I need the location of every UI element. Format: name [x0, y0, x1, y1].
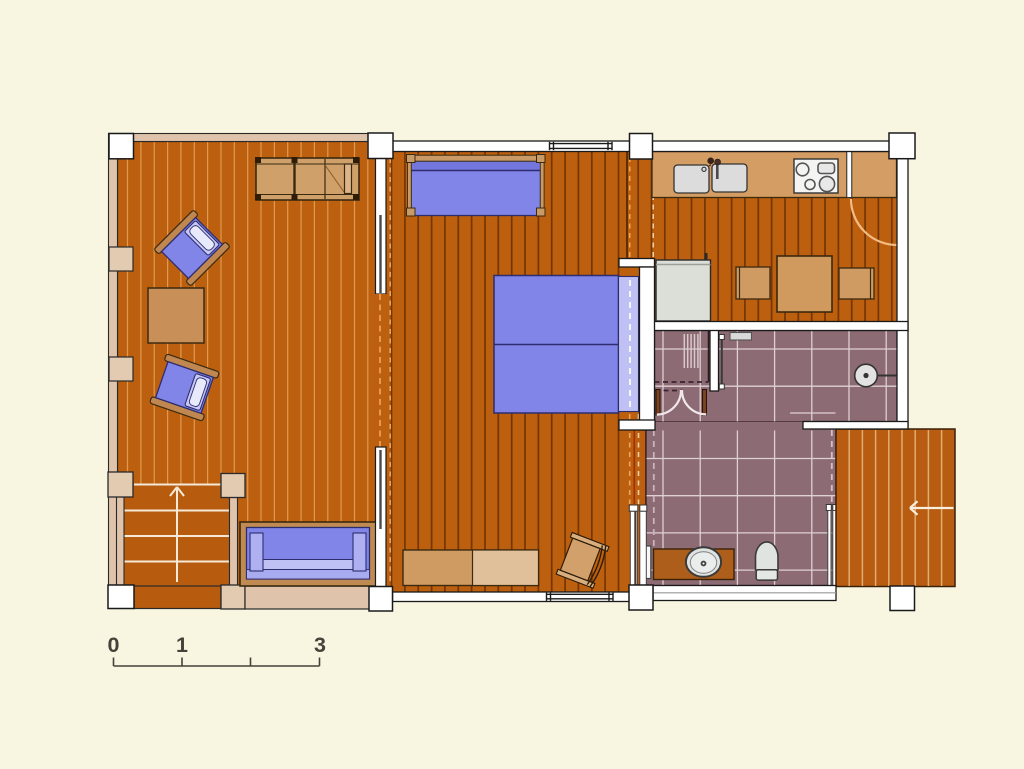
svg-text:3: 3 — [314, 633, 326, 657]
svg-text:0: 0 — [108, 633, 120, 657]
svg-text:1: 1 — [176, 633, 188, 657]
